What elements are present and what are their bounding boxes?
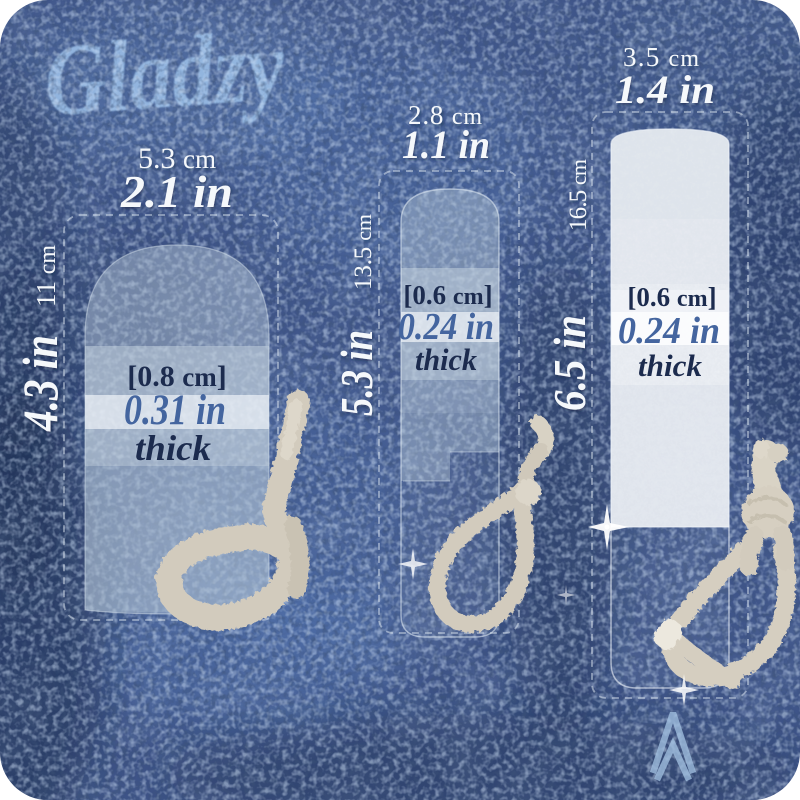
svg-text:0.24 in: 0.24 in [618, 310, 720, 352]
svg-text:13.5 cm: 13.5 cm [350, 214, 377, 290]
svg-text:0.31 in: 0.31 in [124, 387, 226, 434]
svg-text:2.1 in: 2.1 in [120, 166, 233, 217]
svg-text:16.5 cm: 16.5 cm [565, 159, 592, 231]
svg-text:4.3 in: 4.3 in [12, 335, 68, 432]
svg-text:thick: thick [638, 348, 702, 383]
svg-text:1.1 in: 1.1 in [402, 122, 490, 167]
svg-text:6.5 in: 6.5 in [544, 315, 595, 411]
svg-text:11 cm: 11 cm [31, 245, 61, 307]
svg-text:thick: thick [135, 428, 211, 468]
svg-text:5.3 in: 5.3 in [331, 330, 382, 416]
svg-text:thick: thick [415, 342, 477, 377]
svg-text:1.4 in: 1.4 in [615, 67, 715, 112]
svg-text:[0.6 cm]: [0.6 cm] [627, 282, 716, 312]
